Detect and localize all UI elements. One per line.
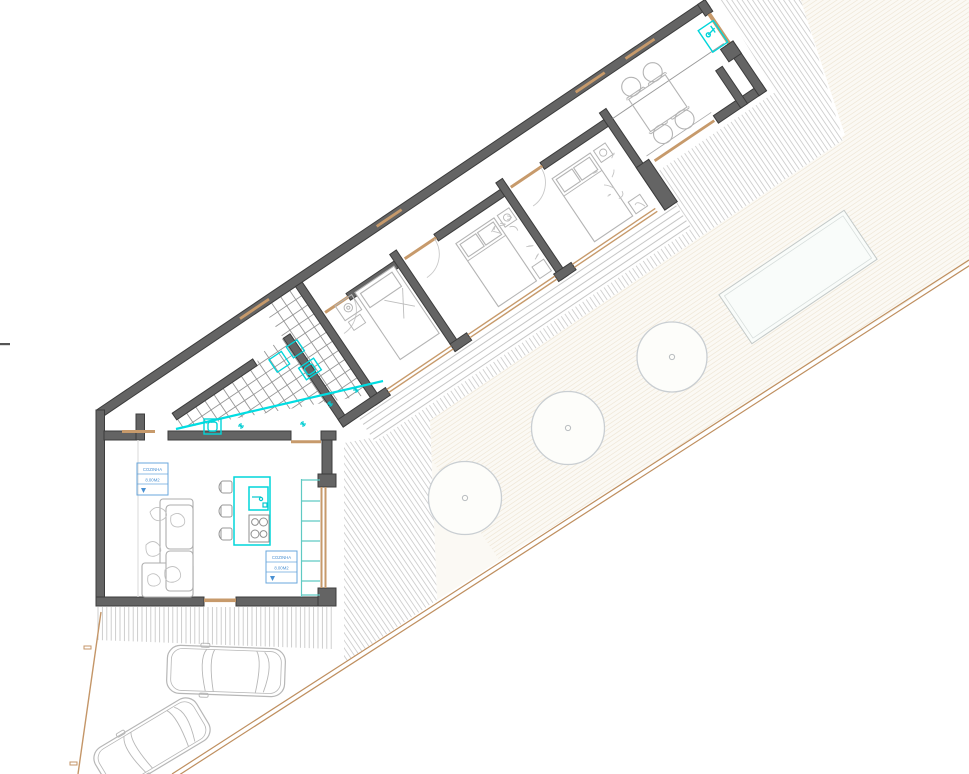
- svg-text:COZINHA: COZINHA: [143, 467, 162, 472]
- svg-text:8.00M2: 8.00M2: [145, 478, 160, 483]
- svg-text:8.00M2: 8.00M2: [274, 566, 289, 571]
- svg-text:COZINHA: COZINHA: [272, 555, 291, 560]
